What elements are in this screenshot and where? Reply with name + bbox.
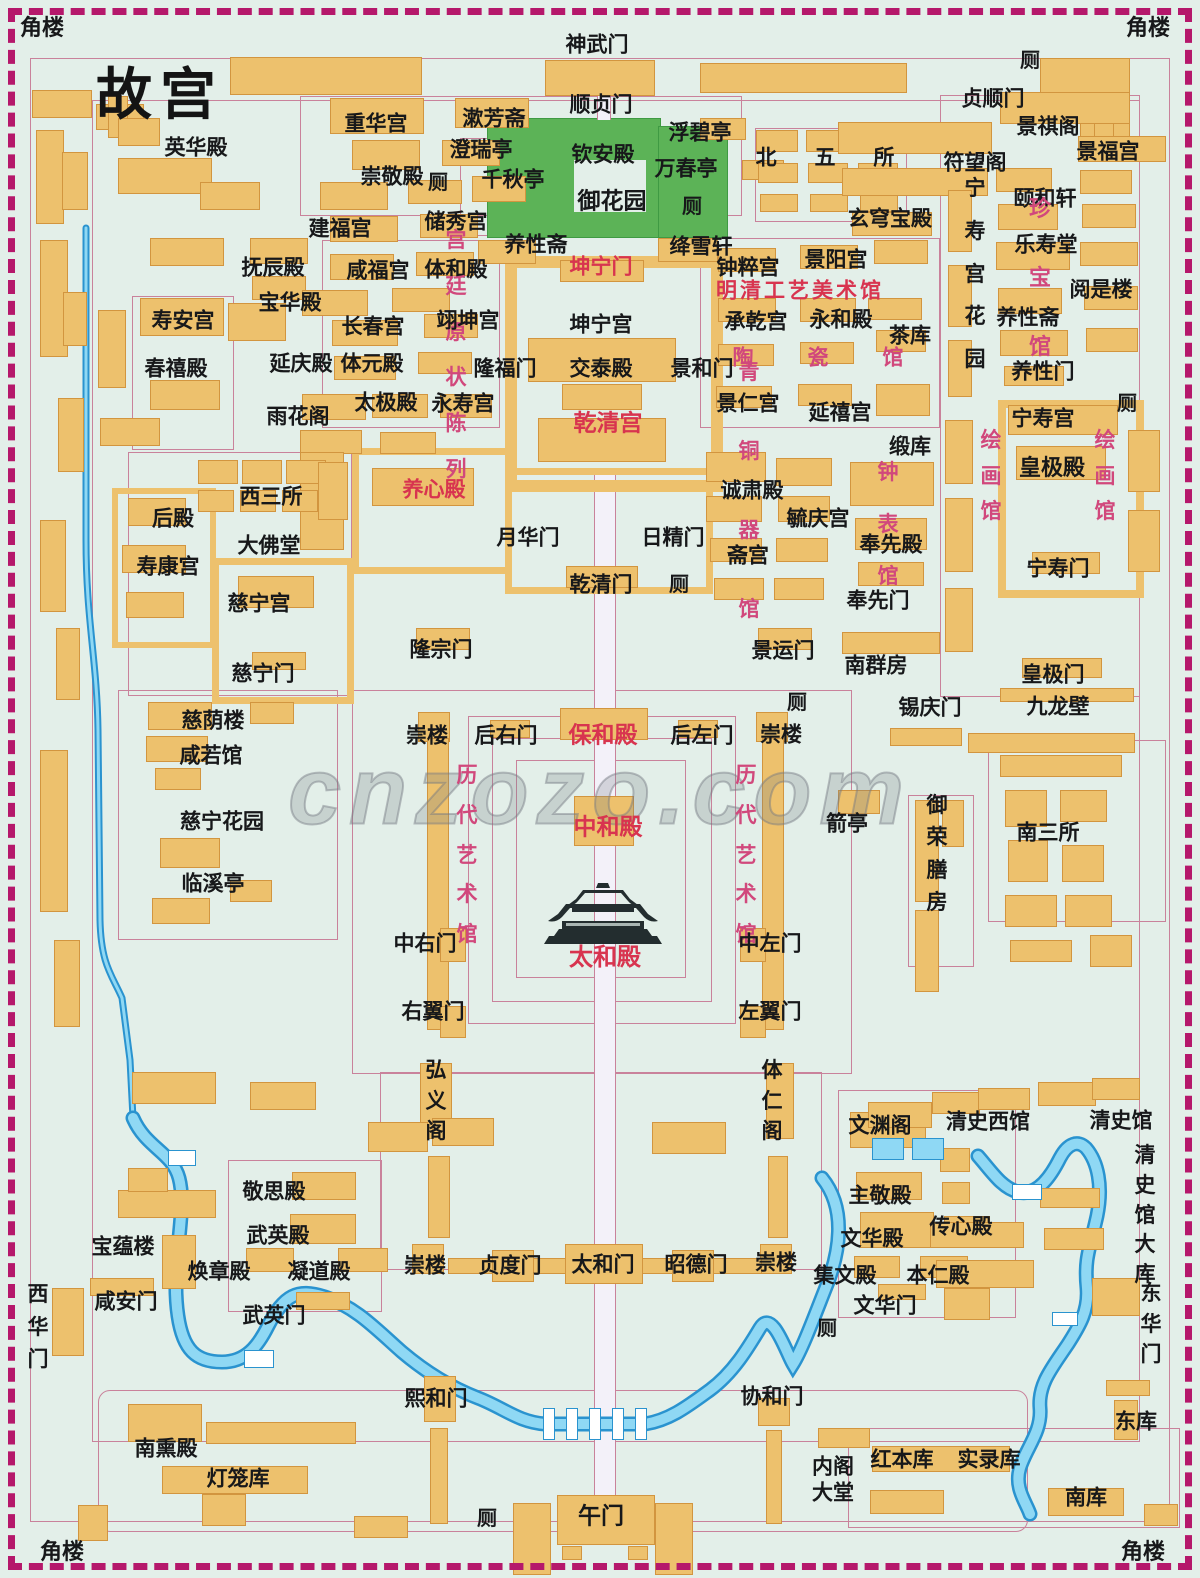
map-label: 交泰殿 (570, 359, 633, 380)
map-label: 中左门 (739, 934, 802, 955)
map-label: 钟粹宫 (717, 258, 780, 279)
map-label: 绛雪轩 (670, 237, 733, 258)
map-label: 皇极殿 (1019, 457, 1085, 479)
map-label: 临溪亭 (182, 874, 245, 895)
building (768, 1156, 788, 1238)
map-label: 厕 (682, 197, 702, 217)
map-label: 弘义阁 (426, 1060, 447, 1142)
map-label: 浮碧亭 (669, 123, 732, 144)
map-label: 崇楼 (755, 1253, 797, 1274)
building (300, 430, 362, 454)
map-label: 坤宁门 (570, 257, 633, 278)
building (513, 1503, 551, 1575)
building (63, 292, 87, 346)
building (128, 1168, 168, 1192)
map-label: 延庆殿 (270, 354, 333, 375)
map-label: 隆宗门 (410, 640, 473, 661)
map-label: 养心殿 (403, 480, 466, 501)
building (870, 1490, 944, 1514)
map-label: 慈宁花园 (180, 812, 264, 833)
building (1000, 755, 1122, 777)
building (810, 194, 848, 212)
building (655, 1503, 693, 1575)
map-label: 玄穹宝殿 (848, 209, 932, 230)
map-label: 角楼 (1121, 1541, 1165, 1563)
building (430, 1428, 448, 1524)
building (1082, 204, 1136, 228)
building (915, 910, 939, 992)
map-label: 昭德门 (665, 1255, 728, 1276)
map-label: 阅是楼 (1070, 280, 1133, 301)
map-label: 景福宫 (1077, 142, 1140, 163)
map-label: 乾清宫 (574, 412, 643, 435)
map-label: 绘画馆 (1095, 430, 1116, 522)
map-label: 清史西馆 (946, 1112, 1030, 1133)
map-label: 太和殿 (569, 946, 641, 970)
building (152, 898, 210, 924)
map-label: 御花园 (578, 190, 647, 213)
building (628, 1546, 648, 1560)
map-label: 后左门 (671, 726, 734, 747)
building (128, 1404, 202, 1442)
map-label: 文渊阁 (849, 1116, 912, 1137)
map-label: 神武门 (566, 35, 629, 56)
building (98, 310, 126, 388)
map-label: 太和门 (572, 1255, 635, 1276)
map-label: 承乾宫 (725, 312, 788, 333)
map-label: 慈宁门 (232, 664, 295, 685)
map-label: 养性斋 (997, 308, 1060, 329)
map-label: 崇敬殿 (361, 167, 424, 188)
building (62, 152, 88, 210)
building (978, 1088, 1030, 1110)
map-label: 角楼 (1126, 17, 1170, 39)
building (428, 1156, 450, 1238)
map-label: 本仁殿 (907, 1266, 970, 1287)
building (944, 1288, 990, 1320)
building (545, 60, 655, 96)
map-label: 集文殿 (814, 1266, 877, 1287)
building (1080, 170, 1132, 194)
map-label: 南库 (1065, 1488, 1107, 1509)
map-label: 奉先殿 (860, 535, 923, 556)
building (874, 240, 928, 264)
map-label: 永和殿 (810, 310, 873, 331)
map-label: 历代艺术馆 (457, 765, 478, 945)
building (1010, 940, 1072, 962)
map-label: 九龙壁 (1027, 697, 1090, 718)
building (150, 380, 220, 410)
building (132, 1072, 216, 1104)
map-label: 厕 (477, 1509, 497, 1529)
map-label: 陶 瓷 馆 (733, 348, 928, 369)
building (1008, 840, 1048, 882)
map-label: 贞度门 (479, 1256, 542, 1277)
map-label: 皇极门 (1022, 665, 1085, 686)
map-label: 中右门 (394, 934, 457, 955)
map-label: 历代艺术馆 (736, 765, 757, 945)
map-label: 清史馆大库 (1135, 1145, 1156, 1285)
building (150, 238, 224, 266)
building (1040, 58, 1130, 94)
building (700, 63, 907, 93)
map-label: 宫廷原状陈列 (446, 230, 467, 480)
map-label: 左翼门 (739, 1002, 802, 1023)
map-label: 英华殿 (165, 138, 228, 159)
map-label: 南群房 (845, 656, 908, 677)
map-label: 灯笼库 (207, 1469, 270, 1490)
building (1092, 1278, 1140, 1316)
building (318, 462, 348, 520)
building (230, 57, 422, 95)
building (1040, 1188, 1100, 1208)
map-label: 澄瑞亭 (450, 140, 513, 161)
map-label: 抚辰殿 (242, 258, 305, 279)
building (242, 460, 282, 484)
building (1038, 1082, 1096, 1106)
map-label: 景和门 (671, 359, 734, 380)
map-label: 厕 (669, 575, 689, 595)
building (562, 1546, 582, 1560)
bridge (612, 1408, 624, 1440)
map-label: 太极殿 (355, 393, 418, 414)
map-label: 奉先门 (847, 591, 910, 612)
forbidden-city-map: 角楼角楼角楼角楼神武门厕顺贞门贞顺门重华宫漱芳斋景祺阁英华殿澄瑞亭钦安殿浮碧亭万… (0, 0, 1200, 1578)
map-label: 敬思殿 (243, 1182, 306, 1203)
map-label: 钦安殿 (572, 145, 635, 166)
map-label: 大佛堂 (238, 536, 301, 557)
map-label: 建福宫 (309, 219, 372, 240)
map-label: 南三所 (1017, 823, 1080, 844)
map-label: 慈荫楼 (182, 711, 245, 732)
map-label: 钟表馆 (878, 462, 899, 587)
bridge (244, 1350, 274, 1368)
building (1144, 1504, 1178, 1526)
building (100, 418, 160, 446)
map-label: 崇楼 (404, 1256, 446, 1277)
building (40, 750, 68, 912)
building (776, 458, 832, 486)
map-label: 厕 (428, 173, 448, 193)
building (1092, 1078, 1140, 1100)
map-label: 崇楼 (760, 725, 802, 746)
map-label: 东库 (1115, 1412, 1157, 1433)
map-label: 角楼 (20, 17, 64, 39)
building (250, 702, 294, 724)
map-label: 明清工艺美术馆 (716, 281, 884, 302)
building (652, 1122, 726, 1154)
building (368, 1122, 428, 1152)
building (206, 1422, 356, 1444)
pool (872, 1138, 904, 1160)
map-label: 武英门 (243, 1306, 306, 1327)
map-label: 协和门 (741, 1387, 804, 1408)
building (968, 733, 1135, 753)
map-label: 寿康宫 (137, 557, 200, 578)
map-label: 内阁 (812, 1457, 854, 1478)
building (160, 838, 220, 868)
map-label: 锡庆门 (899, 698, 962, 719)
bridge (168, 1150, 196, 1166)
map-label: 主敬殿 (849, 1186, 912, 1207)
building (766, 1430, 782, 1524)
map-label: 珍宝馆 (1029, 198, 1051, 358)
map-label: 北 五 所 (756, 148, 911, 169)
map-label: 厕 (1117, 394, 1137, 414)
map-label: 延禧宫 (809, 403, 872, 424)
building (1080, 242, 1138, 266)
bridge (635, 1408, 647, 1440)
building (200, 182, 260, 210)
building (818, 1428, 870, 1448)
map-label: 日精门 (642, 528, 705, 549)
building (392, 288, 450, 312)
map-label: 宁寿宫 (1012, 409, 1075, 430)
map-label: 箭亭 (826, 814, 868, 835)
map-label: 缎库 (889, 437, 931, 458)
bridge (566, 1408, 578, 1440)
map-title: 故宫 (96, 50, 224, 131)
map-label: 西三所 (240, 487, 303, 508)
building (774, 578, 824, 600)
building (942, 1182, 970, 1204)
bridge (589, 1408, 601, 1440)
map-label: 符望阁 (944, 153, 1007, 174)
map-label: 凝道殿 (288, 1262, 351, 1283)
map-label: 贞顺门 (962, 89, 1025, 110)
map-label: 慈宁宫 (228, 594, 291, 615)
bridge (1012, 1184, 1042, 1200)
map-label: 乾清门 (570, 575, 633, 596)
map-label: 武英殿 (247, 1226, 310, 1247)
building (198, 460, 238, 484)
map-label: 重华宫 (345, 114, 408, 135)
map-label: 毓庆宫 (787, 509, 850, 530)
map-label: 文华殿 (841, 1229, 904, 1250)
map-label: 养性斋 (505, 235, 568, 256)
map-label: 翊坤宫 (437, 311, 500, 332)
building (126, 592, 184, 618)
map-label: 顺贞门 (570, 95, 633, 116)
map-label: 宝蕴楼 (92, 1237, 155, 1258)
map-label: 永寿宫 (432, 394, 495, 415)
building (1090, 935, 1132, 967)
map-label: 熙和门 (405, 1389, 468, 1410)
building (250, 1082, 316, 1110)
map-label: 传心殿 (930, 1217, 993, 1238)
building (32, 90, 92, 118)
map-label: 中和殿 (574, 816, 643, 839)
building (842, 632, 940, 654)
building (1128, 510, 1160, 572)
building (562, 384, 642, 410)
map-label: 南熏殿 (135, 1439, 198, 1460)
building (40, 520, 66, 612)
map-label: 雨花阁 (267, 407, 330, 428)
map-label: 万春亭 (655, 159, 718, 180)
map-label: 角楼 (40, 1541, 84, 1563)
map-label: 东华门 (1141, 1283, 1162, 1365)
building (1065, 895, 1112, 927)
map-label: 长春宫 (342, 317, 405, 338)
building (54, 940, 80, 1027)
building (1062, 845, 1104, 882)
building (198, 490, 234, 512)
building (940, 1148, 970, 1172)
map-label: 景运门 (752, 641, 815, 662)
building (945, 588, 973, 652)
map-label: 隆福门 (474, 359, 537, 380)
building (155, 768, 201, 790)
building (1086, 328, 1138, 352)
building (1128, 430, 1160, 492)
building (36, 130, 64, 224)
map-label: 体仁阁 (762, 1060, 783, 1142)
map-label: 月华门 (497, 528, 560, 549)
map-label: 厕 (1020, 51, 1040, 71)
courtyard-wall (352, 448, 512, 574)
map-label: 漱芳斋 (463, 109, 526, 130)
map-label: 文华门 (854, 1296, 917, 1317)
building (876, 384, 930, 416)
map-label: 寿安宫 (152, 311, 215, 332)
map-label: 西华门 (28, 1284, 49, 1370)
map-label: 体元殿 (341, 354, 404, 375)
map-label: 千秋亭 (482, 170, 545, 191)
bridge (543, 1408, 555, 1440)
map-label: 实录库 (958, 1450, 1021, 1471)
building (945, 498, 973, 572)
taihedian-icon (544, 883, 662, 944)
map-label: 保和殿 (569, 724, 638, 747)
map-label: 宁寿门 (1027, 559, 1090, 580)
map-label: 大堂 (812, 1483, 854, 1504)
building (1060, 790, 1107, 822)
map-label: 午门 (578, 1505, 624, 1528)
building (1005, 895, 1057, 927)
map-label: 坤宁宫 (570, 315, 633, 336)
map-label: 焕章殿 (188, 1262, 251, 1283)
map-label: 春禧殿 (145, 359, 208, 380)
map-label: 厕 (787, 693, 807, 713)
building (1106, 1380, 1150, 1396)
building (380, 432, 436, 454)
map-label: 崇楼 (406, 726, 448, 747)
building (118, 1190, 216, 1218)
map-label: 咸福宫 (347, 261, 410, 282)
map-label: 斋宫 (727, 546, 769, 567)
bridge (1052, 1312, 1078, 1326)
pool (912, 1138, 944, 1160)
map-label: 右翼门 (402, 1002, 465, 1023)
map-label: 茶库 (889, 326, 931, 347)
building (760, 194, 798, 212)
map-label: 宁寿宫花园 (965, 178, 986, 370)
building (1044, 1228, 1104, 1250)
building (78, 1505, 108, 1541)
map-label: 后殿 (152, 509, 194, 530)
map-label: 咸若馆 (180, 746, 243, 767)
map-label: 景祺阁 (1017, 117, 1080, 138)
building (945, 420, 973, 484)
map-label: 红本库 (871, 1450, 934, 1471)
map-label: 绘画馆 (981, 430, 1002, 522)
building (52, 1288, 84, 1356)
map-label: 后右门 (475, 726, 538, 747)
map-label: 养性门 (1012, 362, 1075, 383)
map-label: 厕 (817, 1319, 837, 1339)
map-label: 诚肃殿 (721, 481, 784, 502)
building (56, 628, 80, 700)
building (118, 158, 212, 194)
building (202, 1494, 246, 1526)
map-label: 景阳宫 (805, 250, 868, 271)
map-label: 咸安门 (95, 1292, 158, 1313)
map-label: 御荣膳房 (927, 795, 948, 913)
building (58, 398, 84, 472)
building (354, 1516, 408, 1538)
map-label: 宝华殿 (259, 293, 322, 314)
map-label: 清史馆 (1090, 1111, 1153, 1132)
building (776, 538, 828, 562)
